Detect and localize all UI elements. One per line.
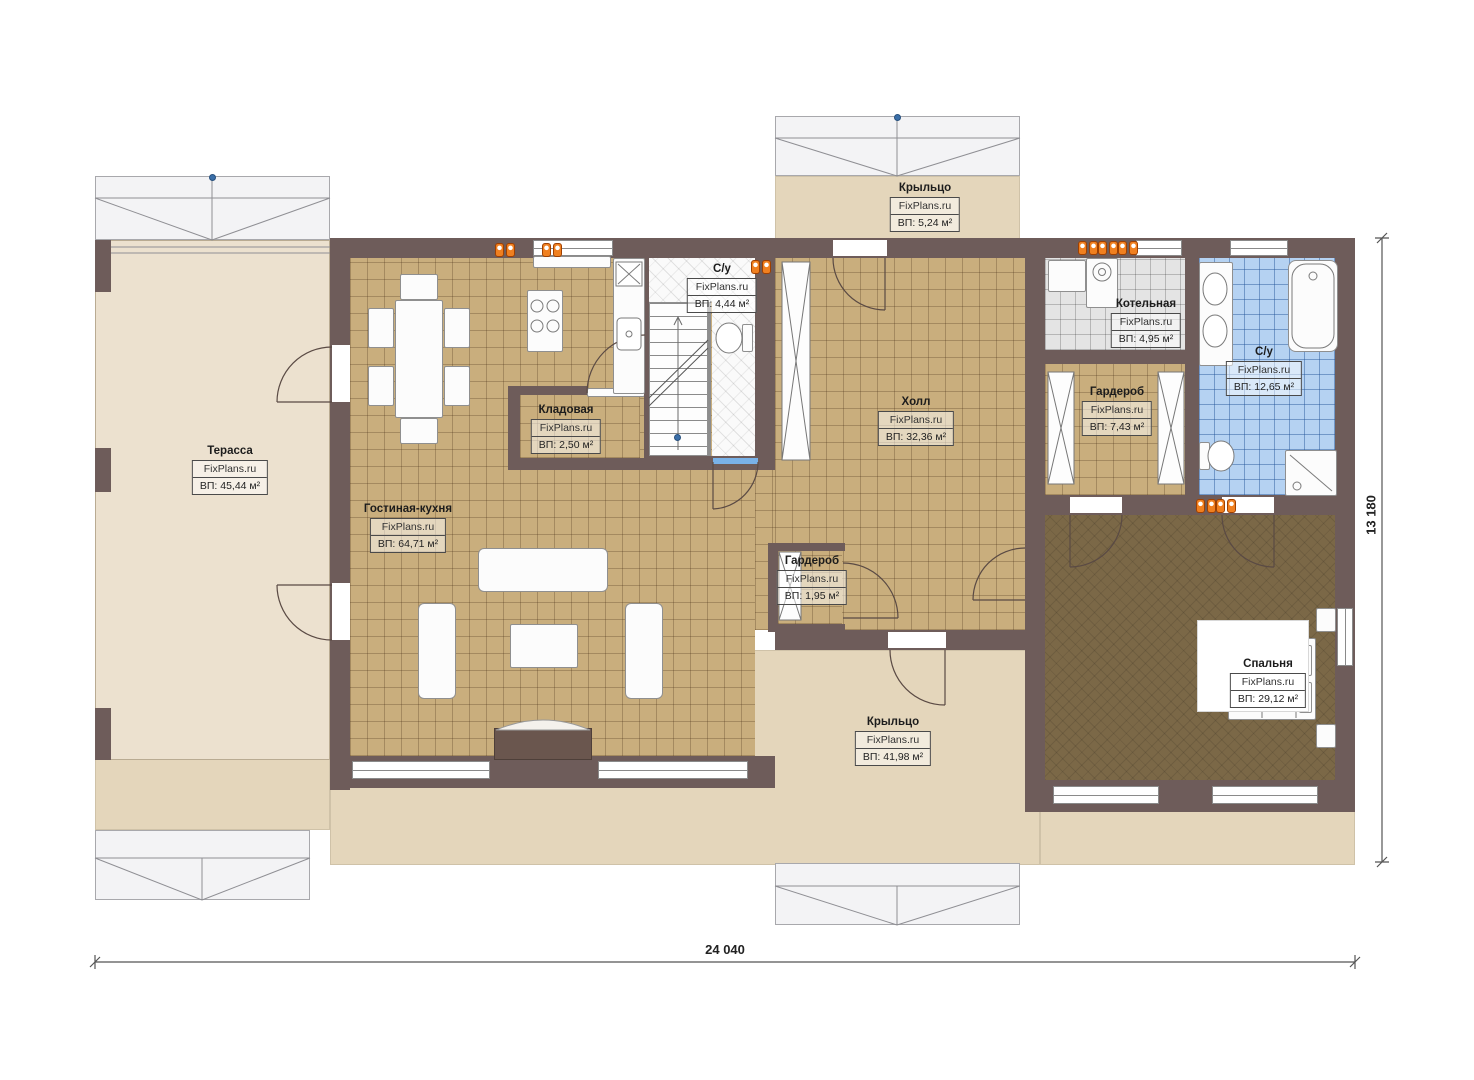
room-name: Крыльцо: [855, 716, 931, 729]
radiator-icon: [1098, 241, 1118, 255]
stair-marker-icon: [674, 434, 681, 441]
kitchen-counter: [533, 256, 611, 268]
room-label-wardrobe-small: Гардероб FixPlans.ru ВП: 1,95 м²: [777, 555, 847, 605]
kitchen-counter: [613, 258, 645, 394]
nightstand: [1316, 608, 1336, 632]
window: [598, 761, 748, 779]
room-area: ВП: 32,36 м²: [879, 429, 953, 445]
room-area: ВП: 41,98 м²: [856, 749, 930, 765]
toilet-tank: [1199, 442, 1210, 470]
room-name: Гардероб: [777, 555, 847, 568]
porch-bottom-floor-right: [1040, 810, 1355, 865]
roof-overhang-top-center: [775, 116, 1020, 176]
room-area: ВП: 7,43 м²: [1083, 419, 1151, 435]
staircase: [649, 302, 708, 456]
watermark: FixPlans.ru: [1083, 402, 1151, 419]
window: [1212, 786, 1318, 804]
shower: [1285, 450, 1337, 496]
room-area: ВП: 64,71 м²: [371, 536, 445, 552]
room-name: Кладовая: [531, 404, 601, 417]
radiator-icon: [1118, 241, 1138, 255]
wall-right: [1335, 238, 1355, 812]
door-threshold: [713, 458, 758, 464]
watermark: FixPlans.ru: [856, 732, 930, 749]
room-name: Терасса: [192, 445, 268, 458]
terrace-door-opening: [332, 583, 350, 640]
chair: [444, 308, 470, 348]
room-area: ВП: 12,65 м²: [1227, 379, 1301, 395]
radiator-icon: [495, 243, 515, 257]
room-area: ВП: 4,44 м²: [688, 296, 756, 312]
fireplace: [494, 728, 592, 760]
chair: [400, 274, 438, 300]
dining-table: [395, 300, 443, 418]
room-name: С/у: [1226, 346, 1302, 359]
room-label-living-kitchen: Гостиная-кухня FixPlans.ru ВП: 64,71 м²: [364, 503, 452, 553]
window: [352, 761, 490, 779]
watermark: FixPlans.ru: [688, 279, 756, 296]
ridge-marker-icon: [894, 114, 901, 121]
wall: [508, 458, 654, 470]
watermark: FixPlans.ru: [193, 461, 267, 478]
room-label-bathroom-large: С/у FixPlans.ru ВП: 12,65 м²: [1226, 346, 1302, 396]
window: [1337, 608, 1353, 666]
room-label-pantry: Кладовая FixPlans.ru ВП: 2,50 м²: [531, 404, 601, 454]
wall: [508, 386, 588, 395]
window: [1053, 786, 1159, 804]
watermark: FixPlans.ru: [879, 412, 953, 429]
room-area: ВП: 29,12 м²: [1231, 691, 1305, 707]
room-area: ВП: 1,95 м²: [778, 588, 846, 604]
room-name: Гостиная-кухня: [364, 503, 452, 516]
room-name: Котельная: [1111, 298, 1181, 311]
hall-porch-door-opening: [888, 632, 946, 648]
room-label-bedroom: Спальня FixPlans.ru ВП: 29,12 м²: [1230, 658, 1306, 708]
watermark: FixPlans.ru: [891, 198, 959, 215]
chair: [368, 366, 394, 406]
room-area: ВП: 4,95 м²: [1112, 331, 1180, 347]
room-name: Крыльцо: [890, 182, 960, 195]
porch-left-strip: [95, 758, 330, 830]
coffee-table: [510, 624, 578, 668]
window: [1136, 240, 1182, 256]
watermark: FixPlans.ru: [1231, 674, 1305, 691]
window: [1230, 240, 1288, 256]
wall: [95, 240, 111, 292]
room-name: Холл: [878, 396, 954, 409]
wall-boiler-bottom: [1045, 350, 1185, 364]
entrance-door-opening: [833, 240, 887, 256]
room-label-hall: Холл FixPlans.ru ВП: 32,36 м²: [878, 396, 954, 446]
wall-bath-small: [755, 258, 775, 463]
radiator-icon: [1078, 241, 1098, 255]
room-name: Гардероб: [1082, 386, 1152, 399]
watermark: FixPlans.ru: [1112, 314, 1180, 331]
bathtub: [1288, 260, 1338, 352]
room-label-porch-top: Крыльцо FixPlans.ru ВП: 5,24 м²: [890, 182, 960, 232]
roof-overhang-bottom-center: [775, 863, 1020, 925]
room-label-terrace: Терасса FixPlans.ru ВП: 45,44 м²: [192, 445, 268, 495]
watermark: FixPlans.ru: [371, 519, 445, 536]
terrace-door-opening: [332, 345, 350, 402]
floor-plan: Терасса FixPlans.ru ВП: 45,44 м² Гостина…: [0, 0, 1474, 1080]
chair: [368, 308, 394, 348]
radiator-icon: [542, 243, 562, 257]
toilet-tank: [742, 324, 753, 352]
armchair: [625, 603, 663, 699]
chair: [400, 418, 438, 444]
wall: [708, 302, 711, 456]
nightstand: [1316, 724, 1336, 748]
room-label-porch-bottom: Крыльцо FixPlans.ru ВП: 41,98 м²: [855, 716, 931, 766]
room-area: ВП: 45,44 м²: [193, 478, 267, 494]
sofa: [478, 548, 608, 592]
radiator-icon: [1216, 499, 1236, 513]
room-area: ВП: 5,24 м²: [891, 215, 959, 231]
roof-overhang-top-left: [95, 176, 330, 240]
terrace-floor: [95, 240, 330, 760]
room-label-bathroom-small: С/у FixPlans.ru ВП: 4,44 м²: [687, 263, 757, 313]
watermark: FixPlans.ru: [778, 571, 846, 588]
dimension-height: 13 180: [1364, 495, 1379, 535]
room-area: ВП: 2,50 м²: [532, 437, 600, 453]
wall-left: [330, 238, 350, 790]
room-label-boiler: Котельная FixPlans.ru ВП: 4,95 м²: [1111, 298, 1181, 348]
watermark: FixPlans.ru: [1227, 362, 1301, 379]
watermark: FixPlans.ru: [532, 420, 600, 437]
dimension-width: 24 040: [705, 942, 745, 957]
boiler-counter: [1048, 260, 1086, 292]
wall: [95, 448, 111, 492]
bedroom-door-opening: [1070, 497, 1122, 513]
ridge-marker-icon: [209, 174, 216, 181]
wall-bedroom-left: [1025, 515, 1045, 812]
radiator-icon: [1196, 499, 1216, 513]
wall-hall-right: [1025, 238, 1045, 515]
wall: [95, 708, 111, 760]
armchair: [418, 603, 456, 699]
wall: [768, 543, 845, 551]
stove: [527, 290, 563, 352]
chair: [444, 366, 470, 406]
room-name: Спальня: [1230, 658, 1306, 671]
room-label-wardrobe: Гардероб FixPlans.ru ВП: 7,43 м²: [1082, 386, 1152, 436]
roof-overhang-bottom-left: [95, 830, 310, 900]
room-name: С/у: [687, 263, 757, 276]
wall-boiler-bath: [1185, 258, 1199, 495]
